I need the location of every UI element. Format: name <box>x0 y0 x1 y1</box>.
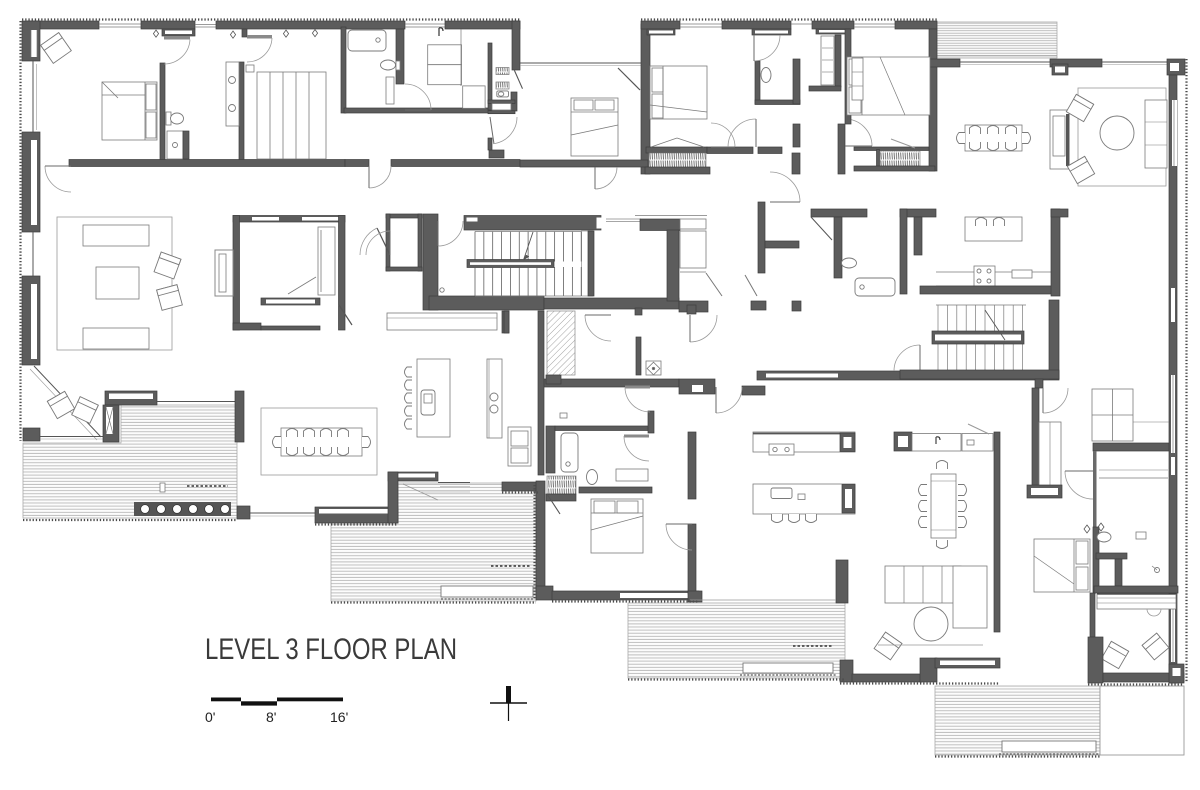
svg-text:16': 16' <box>330 709 348 725</box>
svg-text:0': 0' <box>205 709 215 725</box>
svg-text:LEVEL 3 FLOOR PLAN: LEVEL 3 FLOOR PLAN <box>205 633 457 666</box>
svg-text:8': 8' <box>266 709 276 725</box>
